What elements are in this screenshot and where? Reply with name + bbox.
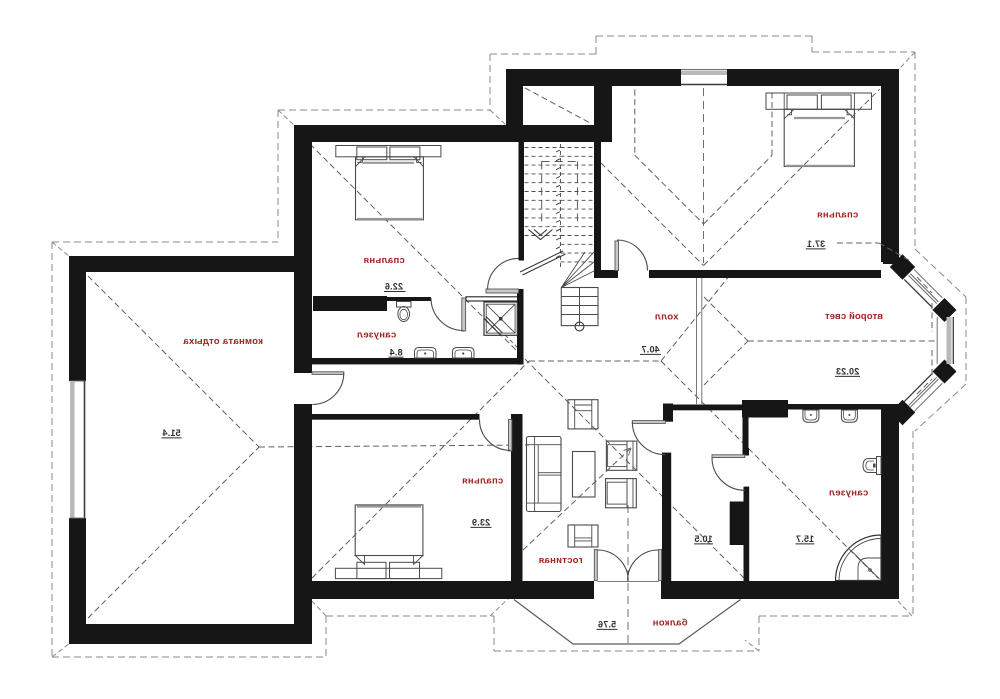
svg-text:санузел: санузел bbox=[357, 330, 397, 341]
svg-text:37.1: 37.1 bbox=[807, 239, 825, 249]
svg-text:10.5: 10.5 bbox=[694, 534, 712, 544]
svg-text:гостиная: гостиная bbox=[538, 555, 582, 566]
svg-text:5.76: 5.76 bbox=[598, 620, 616, 630]
svg-text:8.4: 8.4 bbox=[389, 347, 402, 357]
svg-text:санузел: санузел bbox=[829, 488, 869, 499]
svg-text:51.4: 51.4 bbox=[162, 428, 180, 438]
svg-text:40.7: 40.7 bbox=[641, 345, 659, 355]
svg-text:15.7: 15.7 bbox=[796, 534, 814, 544]
svg-text:спальня: спальня bbox=[462, 476, 504, 487]
svg-text:20.23: 20.23 bbox=[836, 367, 860, 377]
svg-text:балкон: балкон bbox=[652, 618, 687, 629]
svg-text:22.6: 22.6 bbox=[385, 282, 403, 292]
svg-text:спальня: спальня bbox=[363, 255, 405, 266]
svg-text:холл: холл bbox=[655, 312, 679, 323]
svg-text:второй свет: второй свет bbox=[825, 311, 883, 322]
svg-text:23.9: 23.9 bbox=[472, 518, 490, 528]
svg-text:комната отдыха: комната отдыха bbox=[183, 336, 263, 347]
svg-text:спальня: спальня bbox=[817, 210, 859, 221]
